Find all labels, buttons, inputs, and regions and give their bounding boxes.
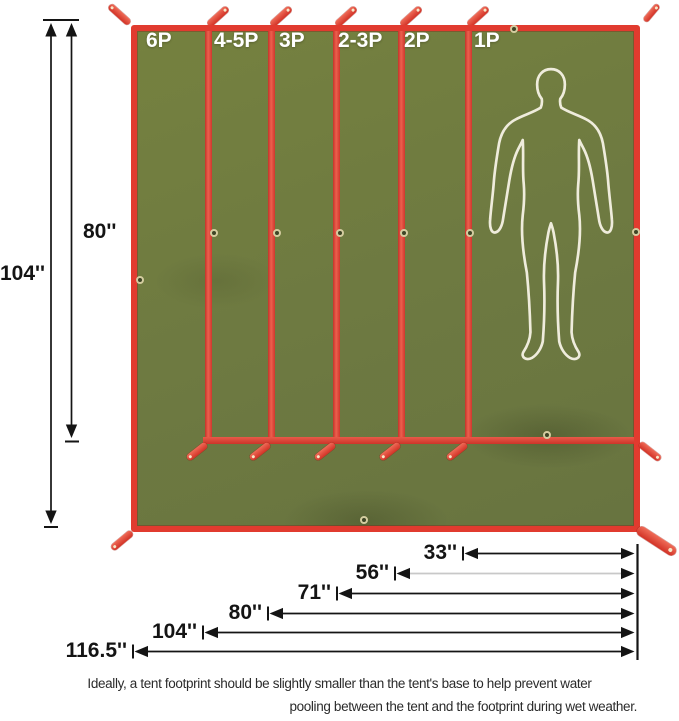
grommet-icon (400, 229, 408, 237)
grommet-icon (632, 228, 640, 236)
caption-line-2: pooling between the tent and the footpri… (0, 697, 637, 717)
section-label-2p: 2P (404, 29, 430, 53)
section-label-2-3p: 2-3P (338, 29, 382, 53)
section-label-4-5p: 4-5P (214, 29, 258, 53)
dim-label-width-71: 71'' (251, 581, 331, 605)
grommet-icon (336, 229, 344, 237)
section-label-3p: 3P (279, 29, 305, 53)
grommet-icon (210, 229, 218, 237)
dim-label-width-116-5: 116.5'' (27, 639, 127, 663)
grommet-icon (273, 229, 281, 237)
human-silhouette-icon (486, 65, 616, 363)
dim-label-height-104: 104'' (0, 262, 45, 286)
dim-label-height-80: 80'' (83, 220, 116, 244)
grommet-icon (136, 276, 144, 284)
grommet-icon (510, 25, 518, 33)
grommet-icon (466, 229, 474, 237)
tie-strap-icon (110, 529, 134, 551)
tie-strap-icon (107, 3, 132, 26)
tie-strap-icon (642, 3, 660, 23)
tent-footprint-diagram: 6P 4-5P 3P 2-3P 2P 1P 104'' 80'' 33'' 56… (0, 0, 679, 721)
dim-label-width-33: 33'' (377, 541, 457, 565)
caption-line-1: Ideally, a tent footprint should be slig… (0, 674, 679, 694)
section-label-1p: 1P (474, 29, 500, 53)
grommet-icon (360, 516, 368, 524)
grommet-icon (543, 431, 551, 439)
section-label-6p: 6P (146, 29, 172, 53)
tie-strap-icon (638, 441, 663, 463)
tie-strap-icon (635, 525, 678, 558)
